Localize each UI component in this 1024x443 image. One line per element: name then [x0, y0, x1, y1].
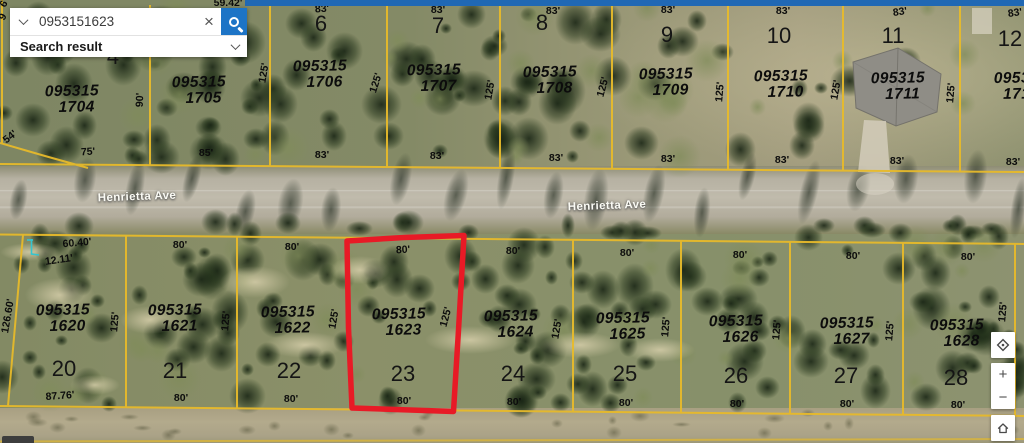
- lot-number: 26: [724, 363, 748, 389]
- parcel-number: 0953151626: [709, 313, 764, 346]
- locate-icon: [996, 338, 1010, 352]
- dimension-label: 80': [396, 244, 411, 257]
- search-icon: [229, 17, 239, 27]
- dimension-label: 80': [174, 392, 188, 404]
- search-bar: ×: [10, 8, 247, 35]
- dimension-label: 125': [219, 311, 233, 332]
- dimension-label: 83': [890, 155, 904, 167]
- search-button[interactable]: [221, 8, 247, 35]
- search-widget: × Search result: [10, 8, 247, 57]
- dimension-label: 83': [549, 152, 563, 164]
- dimension-label: 83': [776, 5, 790, 17]
- road-name-label: Henrietta Ave: [568, 199, 647, 214]
- zoom-in-button[interactable]: +: [991, 363, 1015, 386]
- dimension-label: 125': [659, 317, 673, 338]
- search-result-label: Search result: [20, 39, 232, 54]
- dimension-label: 12.11': [44, 252, 74, 268]
- dimension-label: 80': [397, 395, 411, 407]
- lot-number: 20: [52, 356, 76, 382]
- chevron-down-icon: [19, 15, 29, 25]
- parcel-number: 0953151625: [596, 310, 651, 343]
- dimension-label: 125': [326, 308, 341, 330]
- road-name-label: Henrietta Ave: [98, 190, 177, 205]
- dimension-label: 85': [199, 147, 213, 159]
- lot-number: 12: [998, 26, 1022, 52]
- lot-number: 10: [767, 23, 791, 49]
- dimension-label: 75': [81, 146, 96, 159]
- search-type-dropdown[interactable]: [10, 8, 37, 35]
- chevron-down-icon: [231, 40, 241, 50]
- dimension-label: 126.60': [0, 298, 17, 334]
- home-icon: [996, 421, 1010, 435]
- dimension-label: 125': [549, 318, 564, 340]
- parcel-number: 0953151708: [523, 64, 578, 97]
- dimension-label: 9: [0, 11, 10, 22]
- dimension-label: 54': [1, 128, 20, 146]
- dimension-label: 83': [775, 154, 789, 166]
- dimension-label: 80': [285, 241, 299, 253]
- dimension-label: 80': [619, 397, 633, 409]
- dimension-label: 125': [713, 82, 727, 103]
- dimension-label: 125': [996, 302, 1010, 323]
- dimension-label: 80': [961, 251, 975, 263]
- dimension-label: 125': [256, 62, 271, 84]
- clear-search-button[interactable]: ×: [197, 8, 221, 35]
- lot-number: 27: [834, 363, 858, 389]
- dimension-label: 80': [730, 398, 744, 410]
- map-labels-layer: 0953151704095315170509531517060953151707…: [0, 0, 1024, 443]
- dimension-label: 83': [892, 5, 908, 19]
- dimension-label: 90': [134, 93, 146, 108]
- dimension-label: 60.40': [62, 236, 92, 250]
- parcel-number: 0953151710: [754, 68, 809, 101]
- dimension-label: 125': [108, 312, 122, 333]
- dimension-label: 80': [507, 396, 521, 408]
- parcel-number: 0953151704: [45, 83, 100, 116]
- lot-number: 28: [944, 365, 968, 391]
- dimension-label: 125': [438, 306, 455, 328]
- dimension-label: 83': [315, 149, 329, 161]
- search-input[interactable]: [37, 14, 197, 29]
- dimension-label: 80': [951, 399, 965, 411]
- parcel-number: 0953151621: [148, 302, 203, 335]
- dimension-label: 80': [846, 250, 860, 262]
- parcel-number: 0953151707: [407, 62, 462, 95]
- parcel-number: 0953151624: [484, 308, 539, 341]
- dimension-label: 80': [620, 247, 634, 259]
- dimension-label: 87.76': [45, 389, 75, 403]
- dimension-label: 80': [284, 393, 298, 405]
- dimension-label: 83': [1006, 156, 1020, 168]
- lot-number: 7: [432, 13, 444, 39]
- parcel-number: 0953151622: [261, 304, 316, 337]
- parcel-number: 0953151706: [293, 58, 348, 91]
- zoom-control: + −: [991, 363, 1015, 409]
- lot-number: 9: [661, 22, 673, 48]
- lot-number: 23: [391, 361, 415, 387]
- dimension-label: 83': [430, 150, 444, 162]
- search-result-row[interactable]: Search result: [10, 35, 247, 57]
- dimension-label: 125': [367, 72, 385, 95]
- dimension-label: 80': [506, 245, 520, 257]
- lot-number: 22: [277, 358, 301, 384]
- zoom-out-button[interactable]: −: [991, 386, 1015, 409]
- lot-number: 24: [501, 361, 525, 387]
- dimension-label: 80': [840, 398, 854, 410]
- locate-button[interactable]: [991, 332, 1015, 358]
- dimension-label: 83': [1007, 6, 1023, 20]
- dimension-label: 125': [595, 76, 612, 98]
- lot-number: 25: [613, 361, 637, 387]
- parcel-number: 0953151627: [820, 315, 875, 348]
- dimension-label: 125': [883, 321, 897, 342]
- lot-number: 11: [882, 23, 905, 49]
- dimension-label: 83': [546, 5, 560, 17]
- dimension-label: 125': [482, 79, 497, 101]
- parcel-number: 0953171: [994, 70, 1024, 103]
- parcel-number: 0953151711: [871, 70, 926, 103]
- parcel-number: 0953151709: [639, 66, 694, 99]
- dimension-label: 125': [770, 320, 784, 341]
- parcel-number: 0953151623: [372, 306, 427, 339]
- attribution-box: [2, 436, 34, 443]
- dimension-label: 80': [733, 249, 747, 261]
- parcel-number: 0953151628: [930, 317, 985, 350]
- parcel-number: 0953151620: [36, 302, 91, 335]
- dimension-label: 83': [661, 153, 675, 165]
- dimension-label: 80': [173, 239, 187, 251]
- dimension-label: 125': [944, 83, 958, 104]
- home-button[interactable]: [991, 415, 1015, 441]
- top-map-edge-bar: [245, 0, 1024, 6]
- map-viewport[interactable]: 0953151704095315170509531517060953151707…: [0, 0, 1024, 443]
- parcel-number: 0953151705: [172, 74, 227, 107]
- dimension-label: 125': [828, 79, 843, 101]
- lot-number: 21: [163, 358, 187, 384]
